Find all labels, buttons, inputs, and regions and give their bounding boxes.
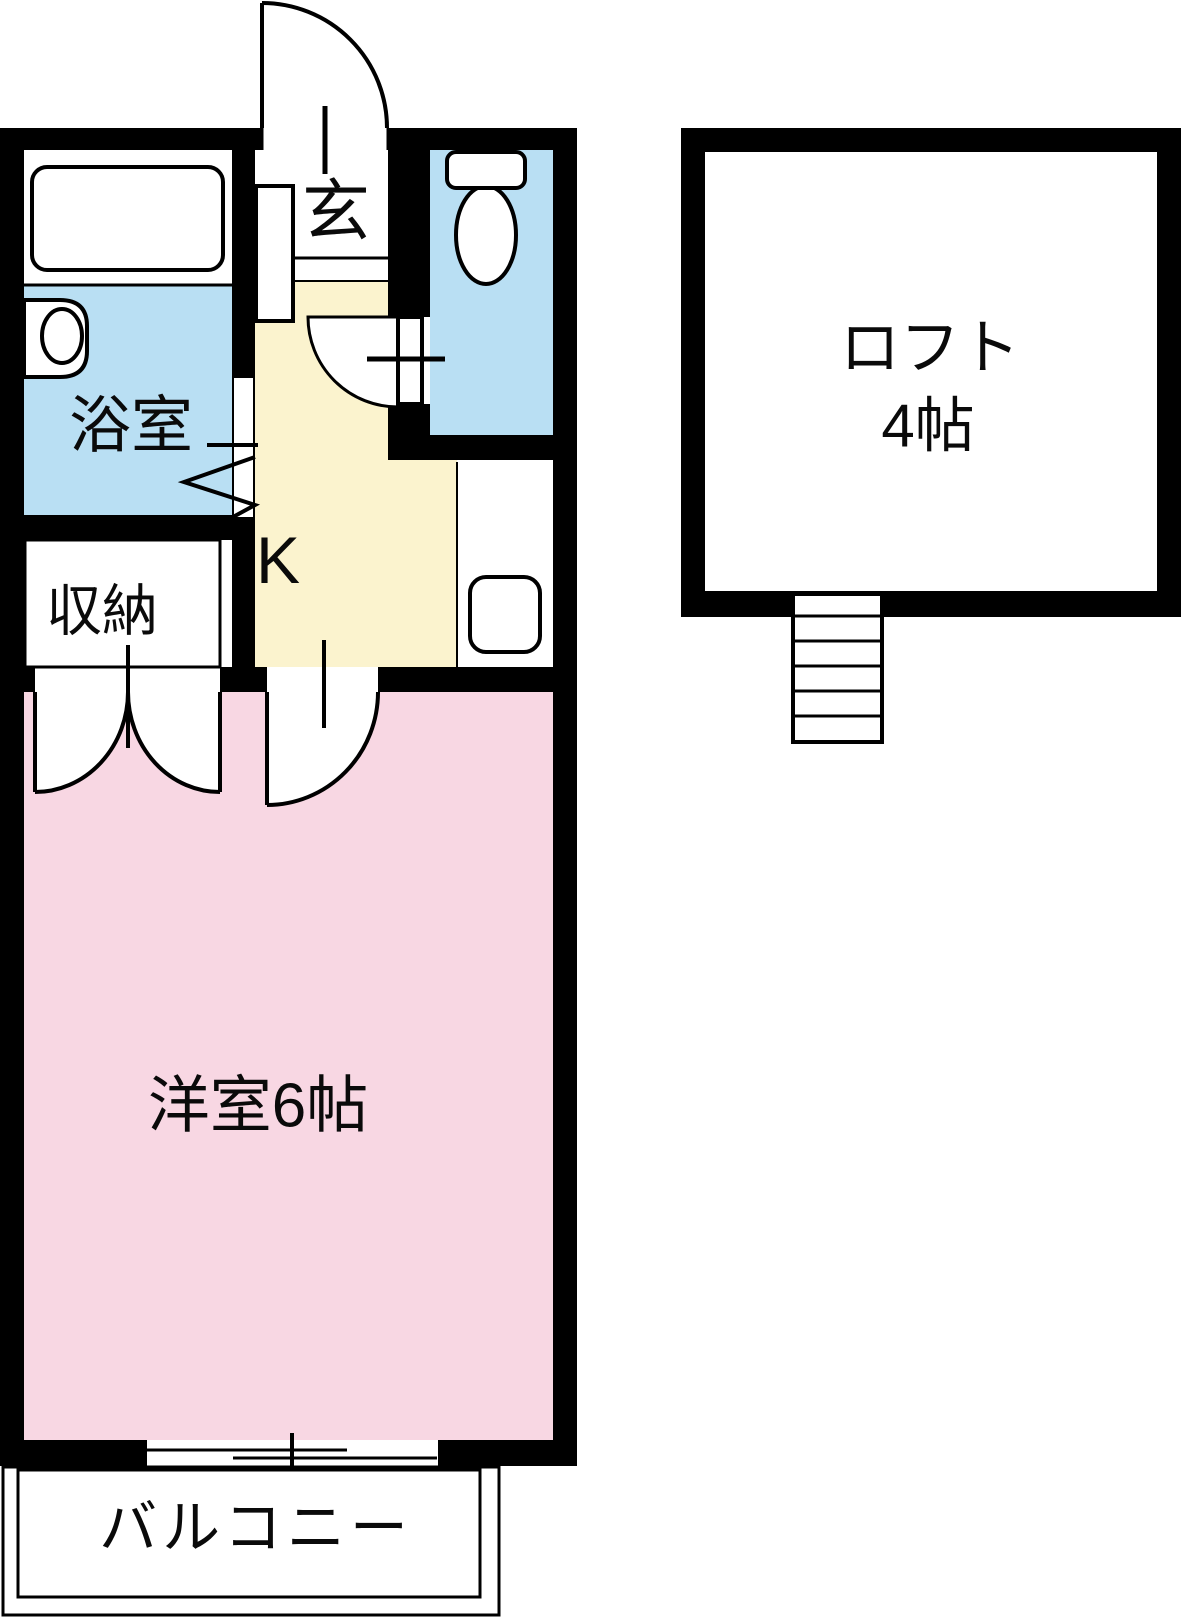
- floor-plan: 玄 浴室 収納 K 洋室6帖 バルコニー ロフ: [0, 0, 1181, 1622]
- kitchen-sink: [470, 577, 540, 652]
- wall-bath-bottom: [0, 515, 255, 540]
- wall-bottom-right: [438, 1440, 577, 1466]
- wall-bottom-left: [0, 1440, 147, 1466]
- toilet-bowl: [456, 186, 516, 284]
- wall-top-right: [388, 128, 577, 150]
- loft-size-label: 4帖: [881, 393, 974, 460]
- main-unit: 玄 浴室 収納 K 洋室6帖 バルコニー: [0, 3, 577, 1615]
- loft-wall-right: [1157, 128, 1181, 617]
- loft-label: ロフト: [840, 315, 1020, 382]
- toilet-tank: [447, 152, 525, 188]
- bathroom-door-opening: [232, 378, 255, 517]
- wall-mid-c: [378, 667, 577, 692]
- western-room-label: 洋室6帖: [148, 1072, 368, 1141]
- wall-mid-b: [220, 667, 267, 692]
- bathtub: [32, 167, 223, 270]
- loft-wall-top: [681, 128, 1181, 152]
- loft-wall-bottom: [681, 591, 1181, 617]
- balcony-label: バルコニー: [99, 1496, 413, 1561]
- wall-left: [0, 128, 24, 1466]
- storage-label: 収納: [46, 580, 158, 643]
- wall-toilet-bottom: [388, 435, 553, 460]
- shoe-cabinet: [256, 186, 293, 321]
- wall-right: [553, 128, 577, 1466]
- wall-top-left: [0, 128, 262, 150]
- wall-mid-a: [0, 667, 35, 692]
- kitchen-label: K: [256, 523, 300, 597]
- washbasin-bowl: [42, 309, 82, 363]
- loft-ladder: [793, 594, 882, 742]
- wall-toilet-left-upper: [388, 150, 430, 317]
- wall-bath-genkan-upper: [232, 150, 255, 378]
- loft-wall-left: [681, 128, 705, 617]
- bathroom-label: 浴室: [69, 392, 193, 461]
- entrance-label: 玄: [302, 174, 370, 250]
